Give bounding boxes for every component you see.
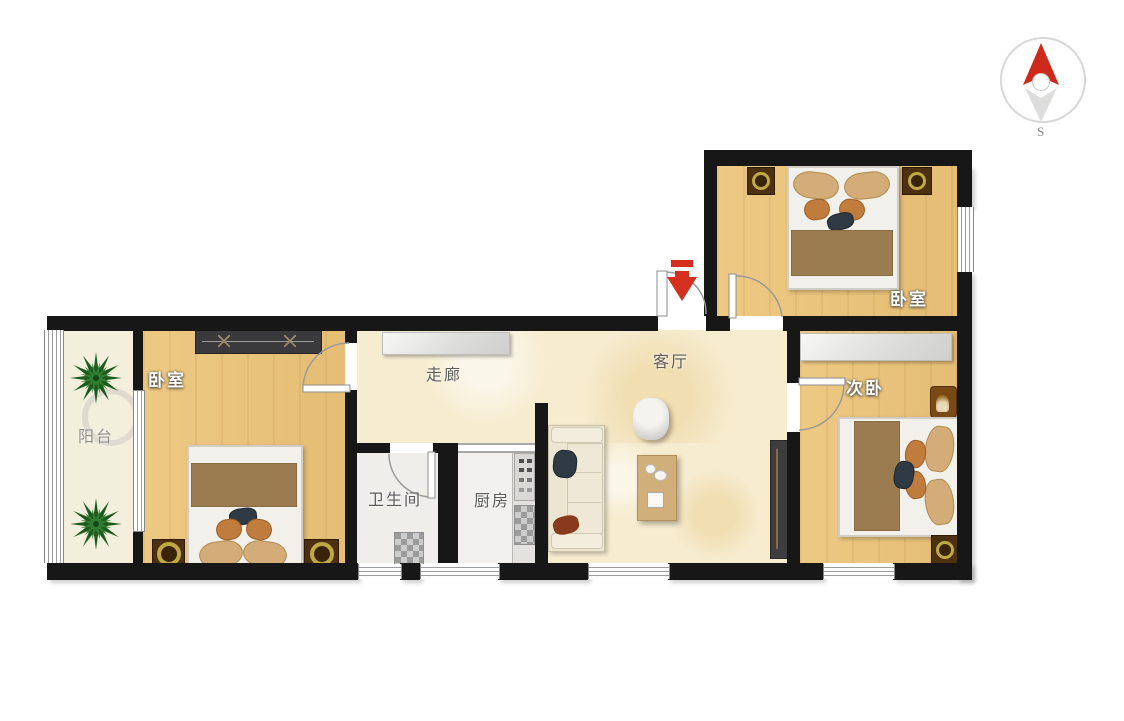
sofa-armrest: [551, 533, 603, 549]
label-living-room: 客厅: [653, 348, 689, 372]
hanger-icon: [284, 335, 296, 347]
wall-bottom-5: [893, 563, 972, 580]
compass-south-label: S: [1037, 124, 1044, 139]
round-chair: [633, 398, 669, 440]
nightstand: [902, 167, 932, 195]
pillow: [792, 169, 841, 201]
entrance-door-leaf: [657, 271, 667, 316]
pillow: [843, 169, 892, 201]
wall-balcony-stub-top: [133, 330, 143, 390]
wall-top-right: [783, 316, 972, 331]
wall-balcony-stub-bottom: [133, 530, 143, 563]
cushion: [244, 517, 273, 542]
living-room-window: [588, 564, 670, 579]
nightstand-ring: [752, 172, 770, 190]
wall-bath-kitchen: [438, 443, 458, 563]
sofa-armrest: [551, 427, 603, 443]
wall-bathroom-north-left: [357, 443, 390, 453]
wall-bedroom-corridor-bottom: [345, 390, 357, 563]
table-item: [647, 492, 664, 508]
cup: [654, 470, 667, 481]
floor-plan: 阳台 卧室 走廊 客厅 卫生间 厨房 卧室 次卧 S: [0, 0, 1124, 721]
hanger-icon: [218, 335, 230, 347]
wall-bottom-4: [668, 563, 823, 580]
wall-bedroom-corridor-top: [345, 330, 357, 343]
wall-second-bedroom-upper: [787, 331, 800, 383]
wall-bottom-1: [47, 563, 358, 580]
kitchen-window: [420, 564, 500, 579]
kitchen-doorway: [458, 443, 535, 453]
nightstand-ring: [936, 541, 954, 559]
wall-kitchen-east: [535, 403, 548, 563]
coffee-table: [637, 455, 677, 521]
armchair-cushion: [936, 395, 949, 412]
bed-main: [187, 445, 303, 569]
wall-topروom-north: [704, 150, 972, 166]
entrance-door-arc: [667, 272, 706, 314]
pillow: [922, 477, 957, 527]
blanket: [191, 463, 297, 507]
label-bedroom-second: 次卧: [846, 374, 884, 399]
corridor-cabinet: [382, 332, 510, 355]
kitchen-counter: [512, 450, 537, 565]
nightstand: [747, 167, 775, 195]
label-kitchen: 厨房: [474, 487, 510, 511]
nightstand-ring: [908, 172, 926, 190]
nightstand: [931, 535, 959, 565]
wall-top-mid: [706, 316, 730, 331]
armchair: [930, 386, 957, 418]
plant-icon: [70, 352, 122, 408]
wall-bottom-2: [400, 563, 420, 580]
compass: S: [995, 30, 1099, 146]
label-corridor: 走廊: [426, 361, 462, 385]
stove-knobs: [519, 459, 524, 463]
wall-second-bedroom-lower: [787, 432, 800, 563]
stove: [514, 453, 535, 501]
plant-icon: [70, 498, 122, 554]
top-bedroom-window: [957, 207, 974, 272]
compass-hub: [1033, 74, 1050, 91]
sofa: [548, 425, 605, 552]
wardrobe: [195, 330, 322, 354]
label-balcony: 阳台: [78, 423, 114, 447]
bathroom-window: [358, 564, 402, 579]
wall-bottom-3: [498, 563, 588, 580]
wall-east-upper: [957, 166, 972, 207]
second-bedroom-window: [823, 564, 895, 579]
wall-toproom-west: [704, 166, 717, 316]
sofa-seat-line: [567, 502, 601, 503]
wall-east-lower: [957, 272, 972, 580]
wall-top-left: [47, 316, 658, 331]
balcony-window-west: [44, 330, 64, 563]
sink: [514, 505, 535, 545]
balcony-bedroom-window: [133, 390, 145, 532]
compass-south-needle: [1025, 88, 1057, 122]
label-bathroom: 卫生间: [368, 486, 422, 510]
second-bedroom-cabinet: [800, 333, 952, 361]
blanket: [791, 230, 893, 276]
label-bedroom-top: 卧室: [890, 285, 928, 310]
label-bedroom-main: 卧室: [148, 366, 186, 391]
pillow: [922, 424, 957, 474]
bed-top: [787, 166, 899, 290]
entrance-arrow-icon: [667, 260, 697, 301]
bed-second: [838, 417, 961, 537]
tv: [776, 449, 778, 549]
